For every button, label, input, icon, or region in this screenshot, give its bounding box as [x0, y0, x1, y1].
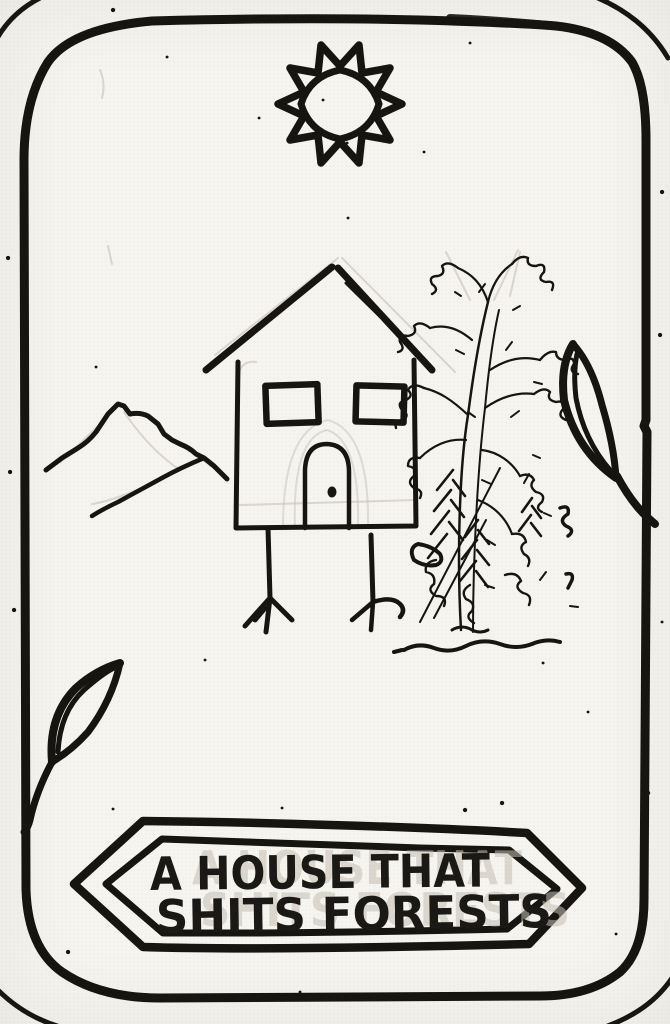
- card-title-line-2: SHITS FORESTS: [156, 884, 553, 944]
- card-illustration: A HOUSE THAT SHITS FORESTS A HOUSE THAT …: [0, 0, 670, 1024]
- door-knob: [328, 487, 337, 498]
- leg-left: [268, 528, 270, 598]
- card-scan: A HOUSE THAT SHITS FORESTS A HOUSE THAT …: [0, 0, 670, 1024]
- sun-center: [301, 70, 379, 139]
- leg-right: [371, 535, 373, 602]
